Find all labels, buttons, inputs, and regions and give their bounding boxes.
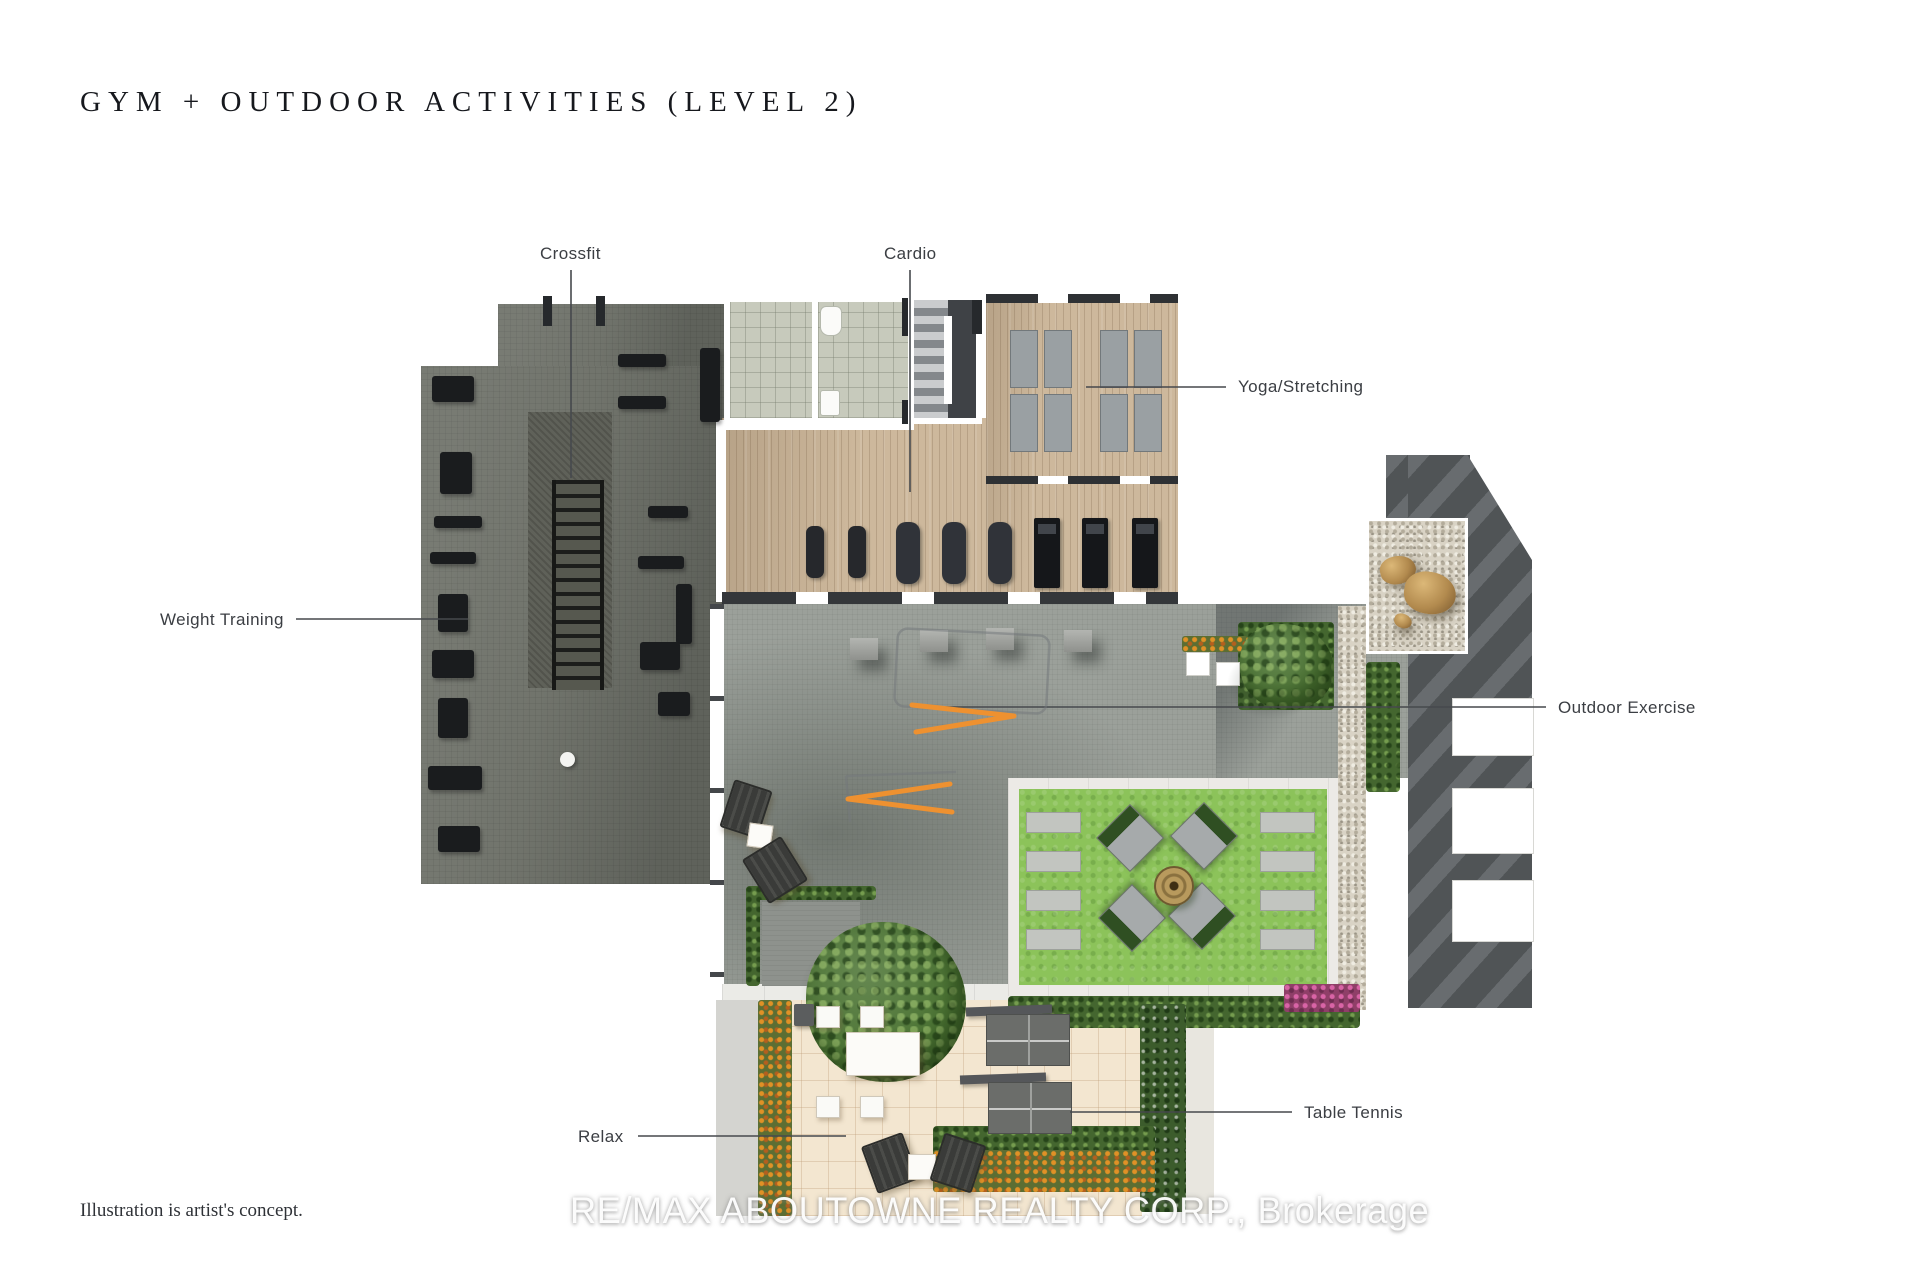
yoga-mat <box>1010 394 1038 452</box>
gym-equipment <box>440 452 472 494</box>
treadmill <box>1082 518 1108 588</box>
label-relax: Relax <box>578 1127 623 1147</box>
lawn-mat <box>1260 929 1315 950</box>
yoga-north-wall <box>986 294 1178 303</box>
gym-equipment <box>430 552 476 564</box>
yoga-mat <box>1100 394 1128 452</box>
sink <box>820 390 840 416</box>
elliptical <box>942 522 966 584</box>
yoga-mat <box>1134 330 1162 388</box>
planter-box <box>1186 652 1210 676</box>
gym-equipment <box>438 698 468 738</box>
gym-equipment <box>432 650 474 678</box>
lawn-mat <box>1026 851 1081 872</box>
gym-equipment <box>428 766 482 790</box>
treadmill <box>1132 518 1158 588</box>
lawn-mat <box>1260 851 1315 872</box>
lawn-mat <box>1026 812 1081 833</box>
crossfit-rig <box>552 480 604 690</box>
gym-equipment <box>648 506 688 518</box>
treadmill <box>1034 518 1060 588</box>
label-weight-training: Weight Training <box>160 610 284 630</box>
table-tennis-table <box>988 1082 1072 1134</box>
balcony-notch <box>1452 788 1534 854</box>
flower-bed-pink <box>1284 984 1360 1012</box>
weight-training-area <box>498 304 724 368</box>
wall-post <box>972 300 982 334</box>
gym-equipment <box>434 516 482 528</box>
elliptical <box>896 522 920 584</box>
gym-equipment <box>638 556 684 569</box>
label-yoga: Yoga/Stretching <box>1238 377 1363 397</box>
stair-rail <box>944 316 952 404</box>
floor-plan-page: GYM + OUTDOOR ACTIVITIES (LEVEL 2) Cross… <box>0 0 1920 1280</box>
yoga-mat <box>1044 330 1072 388</box>
gym-cardio-wall <box>716 420 726 602</box>
page-title: GYM + OUTDOOR ACTIVITIES (LEVEL 2) <box>80 86 862 119</box>
brokerage-watermark: RE/MAX ABOUTOWNE REALTY CORP., Brokerage <box>570 1190 1429 1232</box>
wall-post <box>596 296 605 326</box>
toilet <box>820 306 842 336</box>
terrace-bench <box>850 638 878 660</box>
gravel-walk <box>1338 606 1366 1010</box>
patio-chair <box>816 1096 840 1118</box>
terrace-bench <box>920 630 948 652</box>
window-wall <box>722 592 1178 604</box>
lawn-mat <box>1260 812 1315 833</box>
rowing-machine <box>618 354 666 367</box>
gym-equipment <box>676 584 692 644</box>
yoga-south-wall <box>986 476 1178 484</box>
label-crossfit: Crossfit <box>540 244 601 264</box>
dining-table <box>846 1032 920 1076</box>
yoga-mat <box>1010 330 1038 388</box>
yoga-mat <box>1134 394 1162 452</box>
patio-east-wall <box>1186 1002 1214 1214</box>
patio-chair <box>860 1006 884 1028</box>
yoga-east-wall <box>1178 294 1190 606</box>
gym-equipment <box>432 376 474 402</box>
terrace-bench <box>1064 630 1092 652</box>
gym-equipment <box>640 642 680 670</box>
hedge <box>1366 662 1400 792</box>
yoga-mat <box>1044 394 1072 452</box>
balcony-notch <box>1452 880 1534 942</box>
patio-chair <box>794 1004 814 1026</box>
table-tennis-table <box>986 1014 1070 1066</box>
spin-bike <box>806 526 824 578</box>
patio-chair <box>860 1096 884 1118</box>
elliptical <box>988 522 1012 584</box>
balcony-notch <box>1452 698 1534 756</box>
lawn-mat <box>1026 890 1081 911</box>
gym-equipment <box>438 826 480 852</box>
exercise-ball <box>560 752 575 767</box>
label-table-tennis: Table Tennis <box>1304 1103 1403 1123</box>
patio-chair <box>816 1006 840 1028</box>
hedge-corner <box>746 886 760 986</box>
terrace-west-wall <box>710 604 724 1000</box>
wall-post <box>543 296 552 326</box>
lawn-mat <box>1026 929 1081 950</box>
patio-west-wall <box>716 1000 758 1216</box>
stair-steps <box>914 300 948 418</box>
fire-table <box>1154 866 1194 906</box>
gym-equipment <box>438 594 468 632</box>
lawn-mat <box>1260 890 1315 911</box>
terrace-bench <box>986 628 1014 650</box>
label-outdoor-exercise: Outdoor Exercise <box>1558 698 1696 718</box>
dumbbell-rack <box>700 348 720 422</box>
gym-equipment <box>658 692 690 716</box>
rowing-machine <box>618 396 666 409</box>
disclaimer-text: Illustration is artist's concept. <box>80 1200 303 1222</box>
washroom-room-left <box>730 302 812 418</box>
label-cardio: Cardio <box>884 244 936 264</box>
spin-bike <box>848 526 866 578</box>
yoga-mat <box>1100 330 1128 388</box>
